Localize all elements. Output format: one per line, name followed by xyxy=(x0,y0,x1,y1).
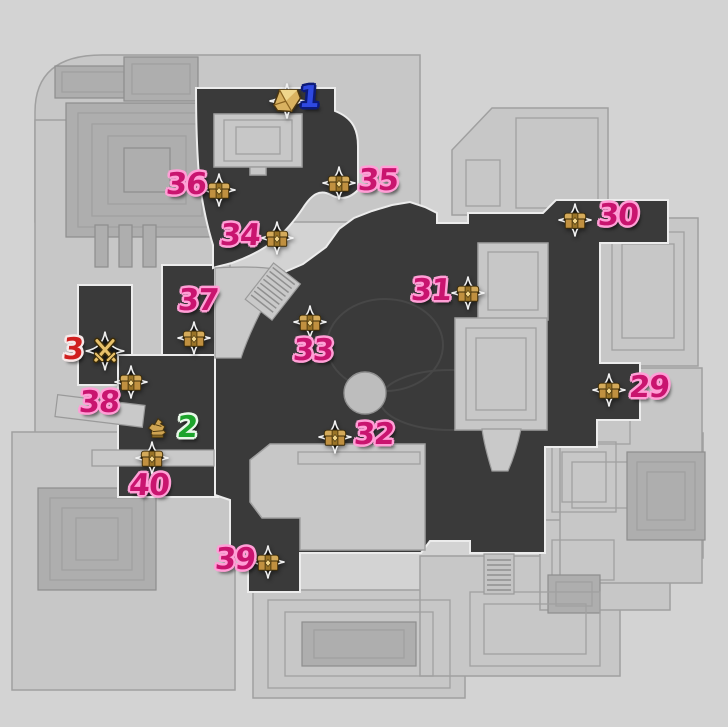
chest-icon xyxy=(558,203,593,238)
marker-label: 2 xyxy=(176,413,198,443)
chest-icon xyxy=(202,173,237,208)
marker-label: 33 xyxy=(292,336,334,366)
marker-label: 1 xyxy=(298,83,320,113)
marker-label: 40 xyxy=(128,471,170,501)
chest-icon xyxy=(260,221,295,256)
chest-icon xyxy=(318,420,353,455)
marker-label: 38 xyxy=(78,388,120,418)
game-map-screenshot: 123293031323334353637383940 xyxy=(0,0,728,727)
chest-icon xyxy=(451,276,486,311)
marker-label: 39 xyxy=(214,545,256,575)
marker-layer: 123293031323334353637383940 xyxy=(0,0,728,727)
marker-label: 34 xyxy=(219,221,261,251)
chest-icon xyxy=(592,373,627,408)
marker-label: 35 xyxy=(357,166,399,196)
marker-label: 37 xyxy=(177,286,219,316)
chest-icon xyxy=(177,321,212,356)
marker-label: 32 xyxy=(353,420,395,450)
marker-label: 30 xyxy=(597,201,639,231)
marker-label: 31 xyxy=(410,276,452,306)
chest-icon xyxy=(322,166,357,201)
marker-label: 29 xyxy=(628,373,670,403)
marker-label: 36 xyxy=(165,170,207,200)
marker-label: 3 xyxy=(62,335,84,365)
